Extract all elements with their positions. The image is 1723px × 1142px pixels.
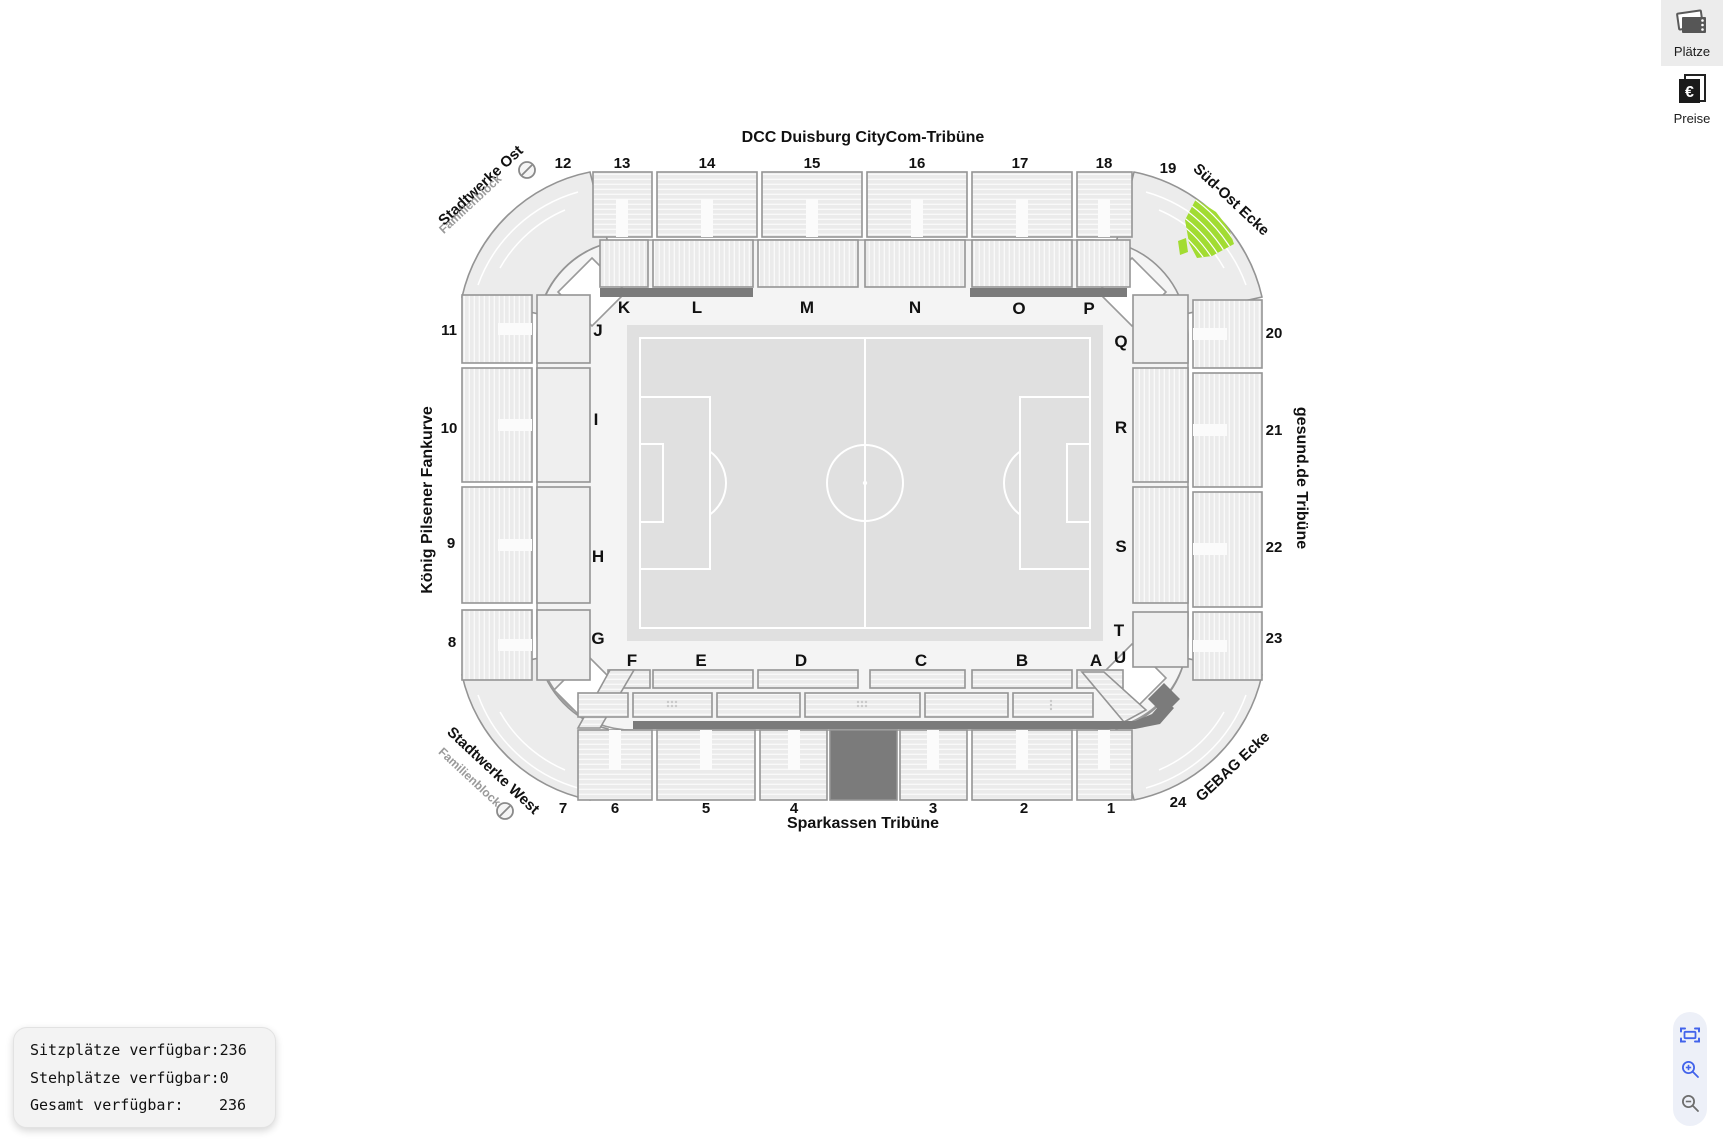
availability-label: Gesamt verfügbar: xyxy=(30,1096,184,1114)
zoom-in-button[interactable] xyxy=(1677,1056,1703,1082)
label-block-U: U xyxy=(1114,648,1126,667)
label-block-B: B xyxy=(1016,651,1028,670)
label-block-21: 21 xyxy=(1266,422,1283,439)
block-K[interactable] xyxy=(600,240,648,287)
label-block-6: 6 xyxy=(611,800,619,817)
familienblock-sw-icon xyxy=(497,803,513,819)
label-block-R: R xyxy=(1115,418,1127,437)
label-block-O: O xyxy=(1012,299,1025,318)
availability-value: 0 xyxy=(220,1069,259,1087)
block-Q[interactable] xyxy=(1133,295,1188,363)
stand-label-west: König Pilsener Fankurve xyxy=(419,406,436,594)
stand-label-north: DCC Duisburg CityCom-Tribüne xyxy=(742,129,985,146)
label-block-I: I xyxy=(594,410,599,429)
label-block-S: S xyxy=(1115,537,1126,556)
map-zoom-controls xyxy=(1673,1012,1707,1126)
block-closed xyxy=(830,730,897,800)
zoom-in-icon xyxy=(1681,1060,1700,1079)
bottom-outer-blocks xyxy=(578,730,1132,800)
left-inner-blocks xyxy=(537,295,590,680)
block-R[interactable] xyxy=(1133,368,1188,482)
label-block-M: M xyxy=(800,298,814,317)
label-block-19: 19 xyxy=(1160,160,1177,177)
label-block-14: 14 xyxy=(699,155,716,172)
block-P[interactable] xyxy=(1077,240,1130,287)
svg-text:€: € xyxy=(1685,84,1694,101)
pitch xyxy=(627,325,1103,641)
label-block-H: H xyxy=(592,547,604,566)
block-J[interactable] xyxy=(537,295,590,363)
block-O[interactable] xyxy=(972,240,1072,287)
block-B[interactable] xyxy=(972,670,1072,688)
label-block-P: P xyxy=(1083,299,1094,318)
label-block-11: 11 xyxy=(441,322,457,339)
stand-label-east: gesund.de Tribüne xyxy=(1293,407,1310,549)
block-lower-5[interactable] xyxy=(925,693,1008,717)
block-H[interactable] xyxy=(537,487,590,603)
label-block-12: 12 xyxy=(555,155,572,172)
walkway-bar-top-left xyxy=(600,288,753,297)
label-block-E: E xyxy=(695,651,706,670)
right-inner-blocks xyxy=(1133,295,1188,667)
euro-price-icon: € xyxy=(1675,73,1709,108)
zoom-out-button[interactable] xyxy=(1677,1090,1703,1116)
label-block-20: 20 xyxy=(1266,325,1283,342)
label-block-F: F xyxy=(627,651,637,670)
fit-view-button[interactable] xyxy=(1677,1022,1703,1048)
block-L[interactable] xyxy=(653,240,753,287)
block-N[interactable] xyxy=(865,240,965,287)
label-block-G: G xyxy=(591,629,604,648)
label-block-23: 23 xyxy=(1266,630,1283,647)
walkway-bar-top-right xyxy=(970,288,1127,297)
label-block-N: N xyxy=(909,298,921,317)
availability-value: 236 xyxy=(219,1096,259,1114)
availability-row-seats: Sitzplätze verfügbar: 236 xyxy=(30,1041,259,1059)
label-block-J: J xyxy=(593,321,602,340)
block-lower-1[interactable] xyxy=(578,693,628,717)
label-block-1: 1 xyxy=(1107,800,1115,817)
right-outer-blocks xyxy=(1193,300,1262,680)
block-G[interactable] xyxy=(537,610,590,680)
label-block-7: 7 xyxy=(559,800,567,817)
label-block-15: 15 xyxy=(804,155,821,172)
label-block-10: 10 xyxy=(441,420,458,437)
block-D[interactable] xyxy=(758,670,858,688)
top-outer-blocks xyxy=(593,172,1132,237)
block-lower-6[interactable] xyxy=(1013,693,1093,717)
block-M[interactable] xyxy=(758,240,858,287)
availability-value: 236 xyxy=(220,1041,259,1059)
label-block-18: 18 xyxy=(1096,155,1113,172)
prices-button-label: Preise xyxy=(1674,111,1711,126)
block-T[interactable] xyxy=(1133,612,1188,667)
stand-label-south: Sparkassen Tribüne xyxy=(787,815,939,832)
block-I[interactable] xyxy=(537,368,590,482)
prices-button[interactable]: € Preise xyxy=(1661,66,1723,132)
label-block-A: A xyxy=(1090,651,1102,670)
label-block-5: 5 xyxy=(702,800,710,817)
fit-view-icon xyxy=(1680,1027,1700,1043)
block-lower-3[interactable] xyxy=(717,693,800,717)
label-block-2: 2 xyxy=(1020,800,1028,817)
zoom-out-icon xyxy=(1681,1094,1700,1113)
label-block-L: L xyxy=(692,298,702,317)
label-block-9: 9 xyxy=(447,535,455,552)
availability-row-standing: Stehplätze verfügbar: 0 xyxy=(30,1069,259,1087)
block-E[interactable] xyxy=(653,670,753,688)
label-block-17: 17 xyxy=(1012,155,1029,172)
places-button-label: Plätze xyxy=(1674,44,1710,59)
label-block-D: D xyxy=(795,651,807,670)
block-S[interactable] xyxy=(1133,487,1188,603)
label-block-24: 24 xyxy=(1170,794,1187,811)
label-block-K: K xyxy=(618,298,631,317)
label-block-22: 22 xyxy=(1266,539,1283,556)
label-block-4: 4 xyxy=(790,800,799,817)
label-block-8: 8 xyxy=(448,634,456,651)
corner-sublabel-nw: Familienblock xyxy=(436,171,504,236)
familienblock-nw-icon xyxy=(519,162,535,178)
label-block-13: 13 xyxy=(614,155,631,172)
label-block-16: 16 xyxy=(909,155,926,172)
availability-label: Stehplätze verfügbar: xyxy=(30,1069,220,1087)
left-outer-blocks xyxy=(462,295,532,680)
places-button[interactable]: Plätze xyxy=(1661,0,1723,66)
block-C[interactable] xyxy=(870,670,965,688)
availability-label: Sitzplätze verfügbar: xyxy=(30,1041,220,1059)
stadium-map: DCC Duisburg CityCom-Tribüne Sparkassen … xyxy=(0,0,1723,1142)
availability-summary: Sitzplätze verfügbar: 236 Stehplätze ver… xyxy=(13,1027,276,1128)
availability-row-total: Gesamt verfügbar: 236 xyxy=(30,1096,259,1114)
seats-icon xyxy=(1674,8,1710,41)
walkway-bar-bottom xyxy=(633,721,1135,729)
label-block-T: T xyxy=(1114,621,1125,640)
label-block-C: C xyxy=(915,651,927,670)
label-block-3: 3 xyxy=(929,800,937,817)
label-block-Q: Q xyxy=(1114,332,1127,351)
